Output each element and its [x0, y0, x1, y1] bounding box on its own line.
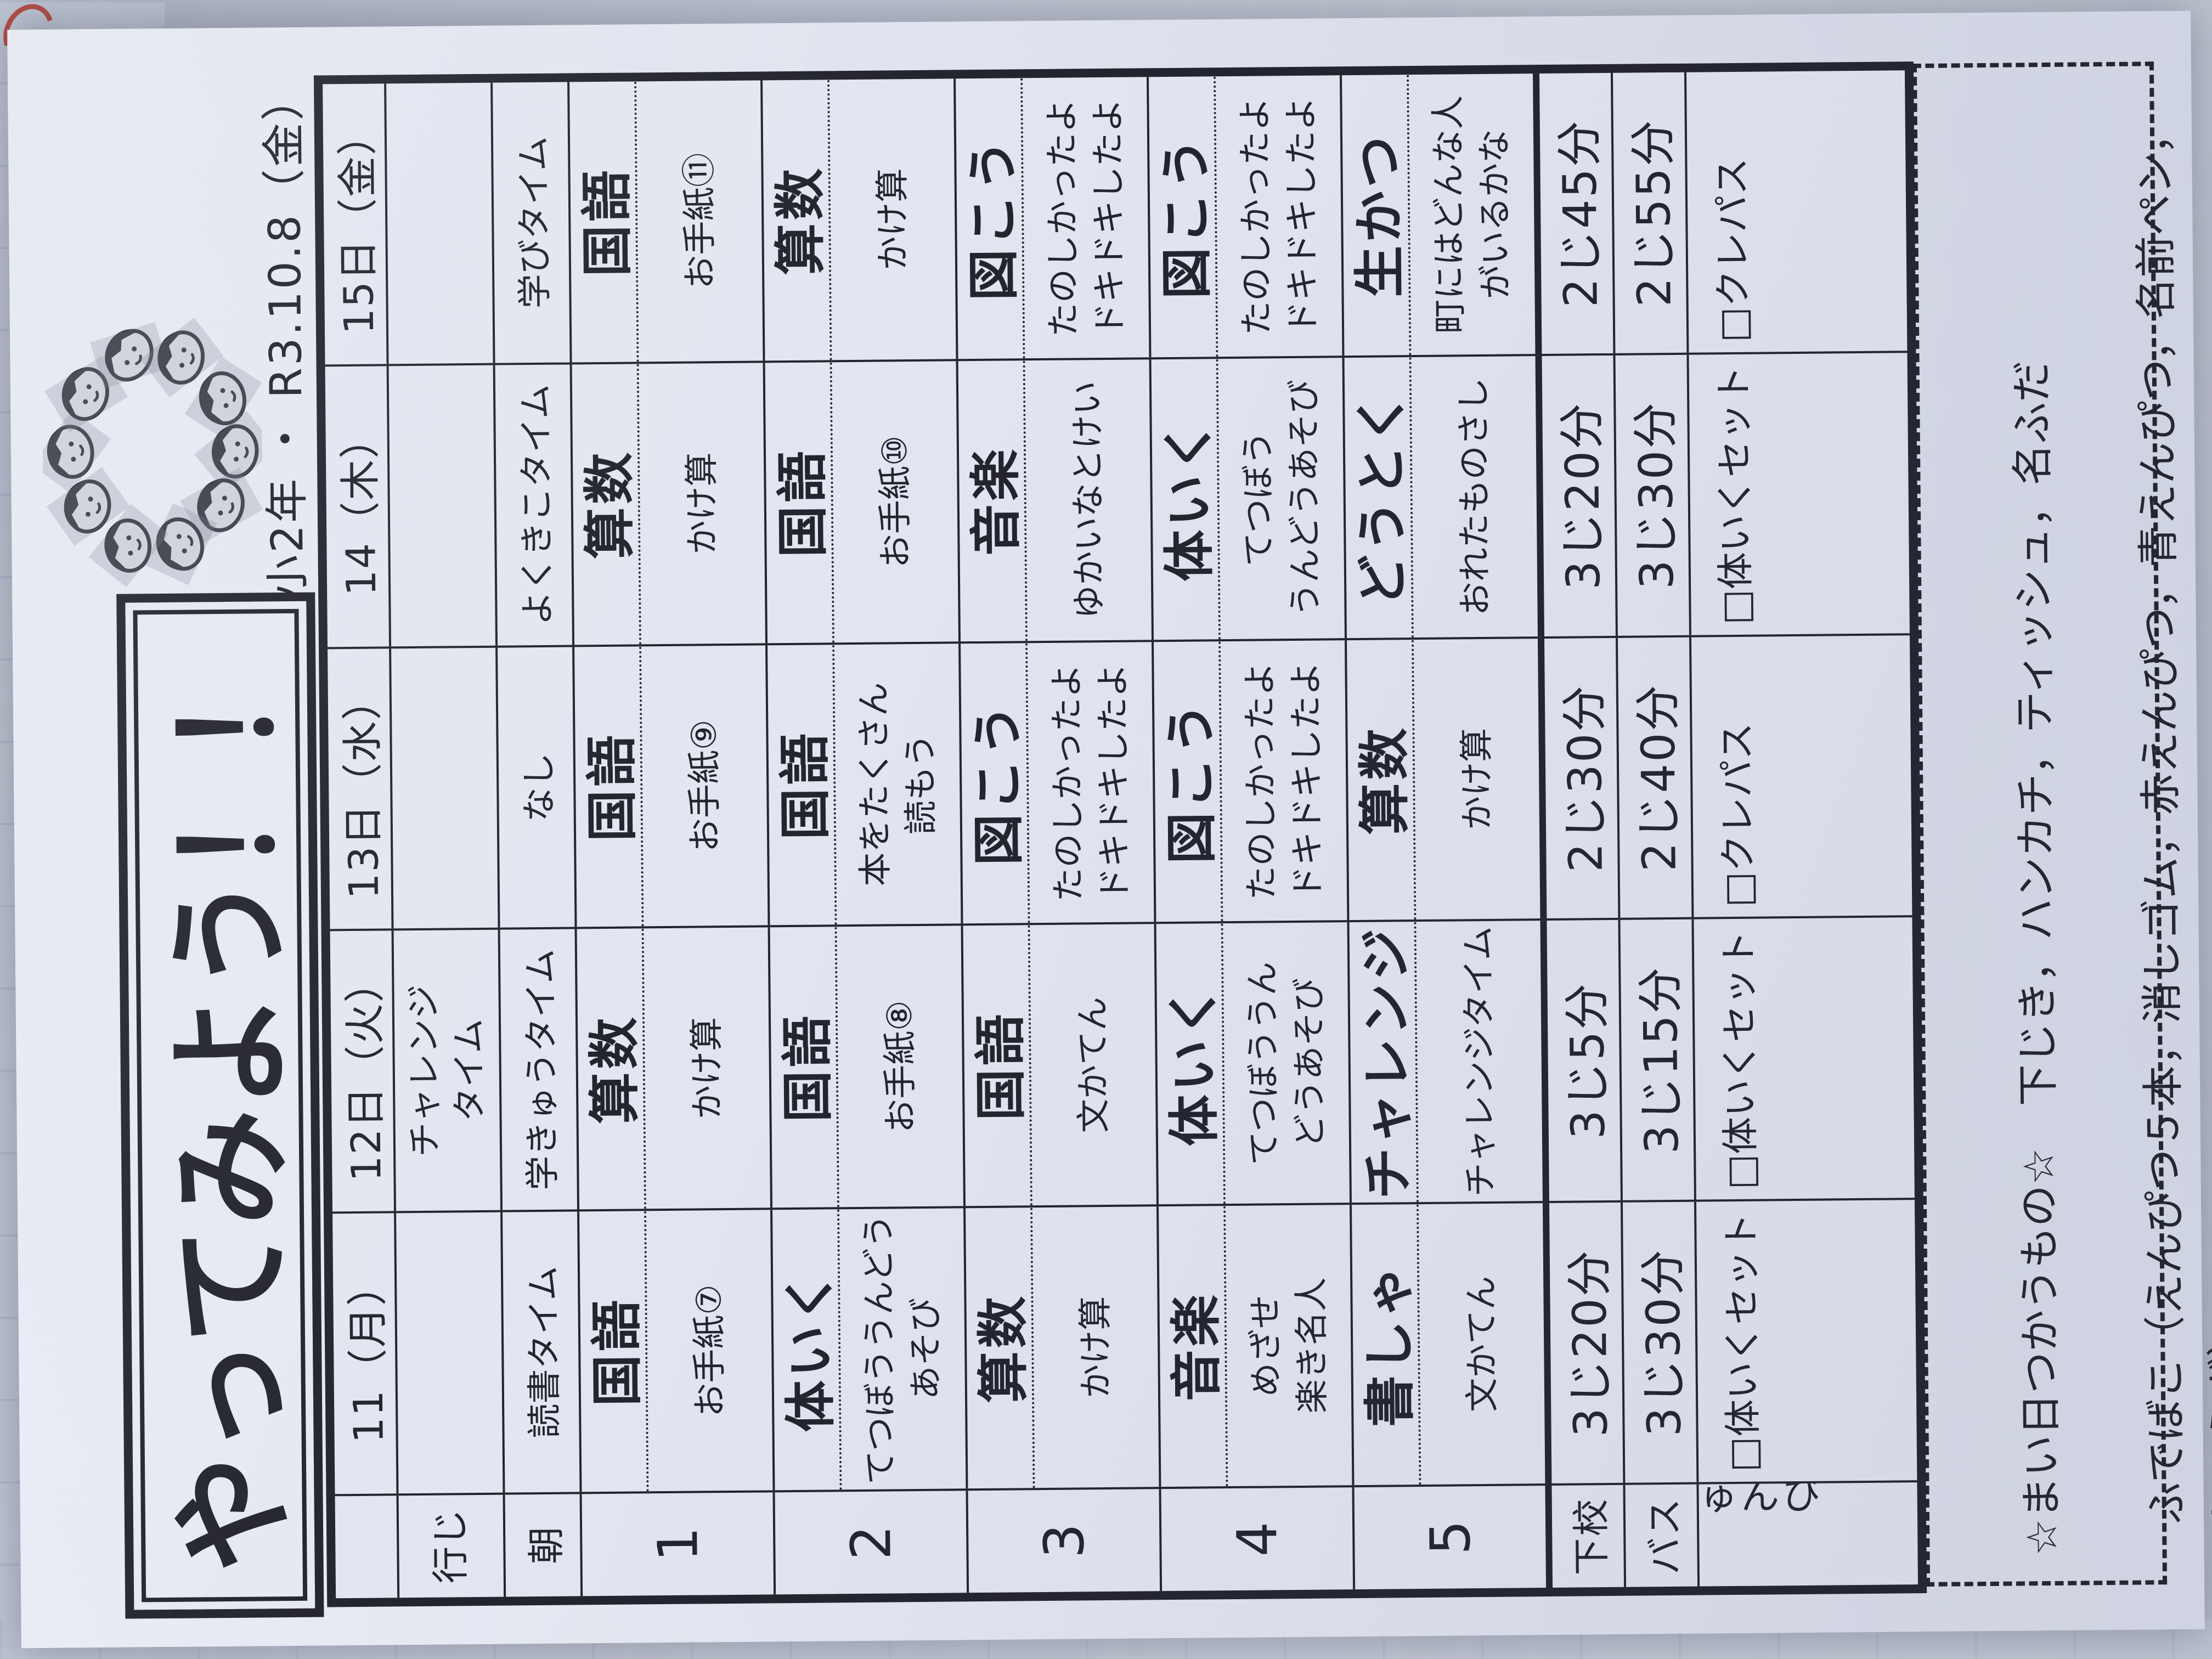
timetable: 行じ 朝 1 2 3 4 5 下校 バス じゅんび 11（月） 読書タイム 国語… [314, 61, 1927, 1607]
subject: 算数 [763, 80, 832, 360]
subject: 体いく [772, 1209, 842, 1490]
row-header-gekou: 下校 [1545, 1485, 1624, 1588]
period-cell: チャレンジ チャレンジタイム [1347, 921, 1542, 1203]
period-cell: 音楽 ゆかいなとけい [956, 359, 1152, 641]
bus-time: 3じ30分 [1621, 1202, 1696, 1483]
subject-detail: めざせ 楽き名人 [1226, 1205, 1352, 1486]
subject: 算数 [577, 929, 646, 1210]
period-cell: 算数 かけ算 [963, 1206, 1159, 1488]
period-cell: 音楽 めざせ 楽き名人 [1156, 1205, 1352, 1487]
period-cell: 書しゃ 文かてん [1350, 1203, 1545, 1485]
subject-detail: かけ算 [1032, 1206, 1159, 1488]
row-header-1: 1 [580, 1492, 774, 1596]
row-header-junbi: じゅんび [1696, 1482, 1918, 1587]
period-cell: 図こう たのしかったよ ドキドキしたよ [958, 642, 1154, 924]
photo-of-school-schedule: { "page": { "title": "やってみよう！！", "school… [0, 0, 2212, 1659]
row-header-bus: バス [1623, 1485, 1697, 1587]
subject-detail: おれたものさし [1412, 356, 1538, 637]
subject: 国語 [579, 1211, 648, 1492]
gyoji-cell [384, 83, 493, 364]
day-header: 15日（金） [323, 83, 386, 364]
day-column-thu: 14（木） よくきこタイム 算数 かけ算 国語 お手紙⑩ 音楽 ゆかいなとけい … [325, 353, 1910, 649]
subject: 国語 [768, 645, 837, 926]
gyoji-cell [394, 1212, 503, 1493]
junbi-cell: □体いくセット [1691, 918, 1914, 1200]
subject: 体いく [1152, 359, 1221, 640]
subject: 国語 [765, 362, 834, 643]
subject: 音楽 [958, 360, 1028, 641]
subject-detail: たのしかったよ ドキドキしたよ [1216, 75, 1342, 357]
subject: 図こう [1154, 641, 1223, 922]
subject-detail: たのしかったよ ドキドキしたよ [1023, 77, 1149, 358]
junbi-cell: □クレパス [1689, 635, 1912, 917]
subject: チャレンジ [1349, 922, 1418, 1203]
gekou-time: 2じ30分 [1538, 637, 1618, 918]
subject-detail: お手紙⑨ [641, 645, 768, 927]
subject-detail: たのしかったよ ドキドキしたよ [1221, 640, 1347, 922]
period-cell: 国語 お手紙⑩ [763, 361, 958, 643]
subject-detail: てつぼう うんどうあそび [1218, 358, 1345, 639]
supplies-notes-box: ☆まい日つかうもの☆ 下じき，ハンカチ，ティッシュ，名ふだ ふでばこ（えんぴつ５… [1912, 61, 2167, 1587]
bus-time: 3じ15分 [1618, 919, 1694, 1200]
subject-detail: チャレンジタイム [1416, 921, 1542, 1203]
gekou-time: 3じ20分 [1543, 1203, 1623, 1483]
bus-time: 2じ55分 [1611, 72, 1686, 353]
day-header: 14（木） [325, 366, 389, 647]
gyoji-cell [389, 647, 498, 928]
subject-detail: お手紙⑩ [832, 361, 958, 642]
subject-detail: 本をたくさん 読もう [834, 644, 961, 925]
row-header-5: 5 [1352, 1486, 1546, 1589]
period-cell: 国語 本をたくさん 読もう [765, 644, 961, 926]
asa-cell: なし [495, 647, 574, 928]
junbi-cell: □体いくセット [1686, 353, 1909, 635]
subject: 書しゃ [1352, 1204, 1421, 1485]
period-cell: 国語 お手紙⑦ [577, 1210, 772, 1492]
subject-detail: ゆかいなとけい [1025, 359, 1152, 641]
period-cell: 図こう たのしかったよ ドキドキしたよ [1152, 640, 1347, 922]
gyoji-cell [387, 365, 495, 646]
period-cell: 体いく てつぼう うんどうあそび [1149, 358, 1345, 640]
day-column-mon: 11（月） 読書タイム 国語 お手紙⑦ 体いく てつぼううんどう あそび 算数 … [332, 1200, 1917, 1496]
day-column-tue: 12日（火） チャレンジ タイム 学きゅうタイム 算数 かけ算 国語 お手紙⑧ … [330, 918, 1915, 1214]
subject: 国語 [770, 927, 839, 1208]
row-header-4: 4 [1159, 1487, 1353, 1591]
subject-detail: 文かてん [1030, 924, 1156, 1206]
period-cell: 体いく てつぼううん どうあそび [1154, 923, 1350, 1205]
subject: 生かつ [1342, 75, 1411, 356]
subject-detail: 文かてん [1419, 1203, 1545, 1485]
period-cell: 算数 かけ算 [1345, 639, 1540, 921]
row-header-2: 2 [773, 1491, 967, 1594]
period-cell: 図こう たのしかったよ ドキドキしたよ [953, 77, 1149, 359]
subject-detail: 町にはどんな人 がいるかな [1409, 74, 1535, 355]
asa-cell: 読書タイム [500, 1212, 579, 1493]
asa-cell: 学びタイム [490, 82, 569, 363]
subject: 算数 [572, 364, 641, 645]
title-box: やってみよう！！ [116, 592, 324, 1619]
junbi-cell: □体いくセット [1694, 1200, 1917, 1482]
asa-cell: 学きゅうタイム [498, 929, 577, 1210]
subject-detail: お手紙⑪ [636, 80, 763, 362]
note-pencilcase-items: ふでばこ（えんぴつ５本，消しゴム，赤えんぴつ，青えんぴつ，名前ペン，じょうぎ） [2123, 91, 2212, 1555]
subject: 体いく [1156, 924, 1226, 1205]
period-cell: 国語 お手紙⑨ [572, 645, 768, 927]
subject: 算数 [1347, 640, 1416, 921]
row-header-3: 3 [966, 1489, 1160, 1593]
note-everyday-items: ☆まい日つかうもの☆ 下じき，ハンカチ，ティッシュ，名ふだ [1998, 92, 2073, 1556]
subject: 音楽 [1159, 1206, 1228, 1487]
period-cell: 国語 お手紙⑧ [768, 926, 963, 1208]
day-header: 13日（水） [328, 648, 391, 929]
subject-detail: かけ算 [830, 78, 956, 360]
subject-detail: かけ算 [644, 928, 770, 1209]
subject-detail: たのしかったよ ドキドキしたよ [1028, 642, 1154, 923]
asa-cell: よくきこタイム [493, 364, 572, 645]
subject: 国語 [569, 81, 639, 362]
bus-time: 3じ30分 [1613, 355, 1689, 636]
subject: 図こう [961, 643, 1030, 924]
row-header-asa: 朝 [503, 1494, 581, 1596]
subject: 国語 [963, 926, 1032, 1206]
corner-cell [335, 1496, 398, 1598]
subject: 図こう [1149, 76, 1218, 357]
subject-detail: てつぼううんどう あそび [839, 1208, 966, 1489]
subject-detail: かけ算 [1414, 639, 1540, 920]
subject: 国語 [574, 646, 644, 927]
gekou-time: 3じ20分 [1535, 356, 1615, 636]
gyoji-cell: チャレンジ タイム [392, 930, 500, 1211]
period-cell: 生かつ 町にはどんな人 がいるかな [1340, 74, 1535, 356]
day-column-fri: 15日（金） 学びタイム 国語 お手紙⑪ 算数 かけ算 図こう たのしかったよ … [323, 70, 1907, 366]
period-cell: 国語 お手紙⑪ [567, 80, 763, 362]
gekou-time: 3じ5分 [1540, 920, 1620, 1201]
period-cell: 国語 文かてん [961, 924, 1156, 1206]
bus-time: 2じ40分 [1616, 637, 1691, 918]
subject-detail: かけ算 [639, 363, 765, 644]
row-header-junbi-label: じゅんび [1696, 1482, 1824, 1521]
period-cell: どうとく おれたものさし [1342, 356, 1538, 638]
gekou-time: 2じ45分 [1533, 73, 1613, 354]
period-cell: 算数 かけ算 [760, 78, 956, 360]
day-header: 12日（火） [330, 931, 394, 1212]
period-cell: 体いく てつぼううんどう あそび [770, 1208, 966, 1490]
day-column-wed: 13日（水） なし 国語 お手紙⑨ 国語 本をたくさん 読もう 図こう たのしか… [328, 635, 1912, 932]
period-cell: 算数 かけ算 [570, 363, 765, 645]
schedule-paper: 本渡東小2年 ・ R3.10.8（金） やってみよう！！ 行じ 朝 1 2 3 … [7, 11, 2205, 1649]
subject-detail: お手紙⑧ [837, 926, 963, 1207]
subject-detail: お手紙⑦ [646, 1210, 772, 1492]
junbi-cell: □クレパス [1684, 70, 1907, 352]
subject: 図こう [956, 78, 1025, 359]
period-cell: 図こう たのしかったよ ドキドキしたよ [1147, 75, 1342, 357]
kids-faces-ring-icon [42, 313, 263, 589]
subject: 算数 [966, 1207, 1035, 1488]
subject: どうとく [1345, 357, 1414, 638]
day-header: 11（月） [332, 1214, 396, 1494]
period-cell: 算数 かけ算 [575, 928, 770, 1210]
subject-detail: てつぼううん どうあそび [1223, 923, 1350, 1204]
row-header-gyoji: 行じ [397, 1495, 504, 1598]
row-header-column: 行じ 朝 1 2 3 4 5 下校 バス じゅんび [335, 1482, 1918, 1598]
page-title: やってみよう！！ [125, 638, 315, 1573]
